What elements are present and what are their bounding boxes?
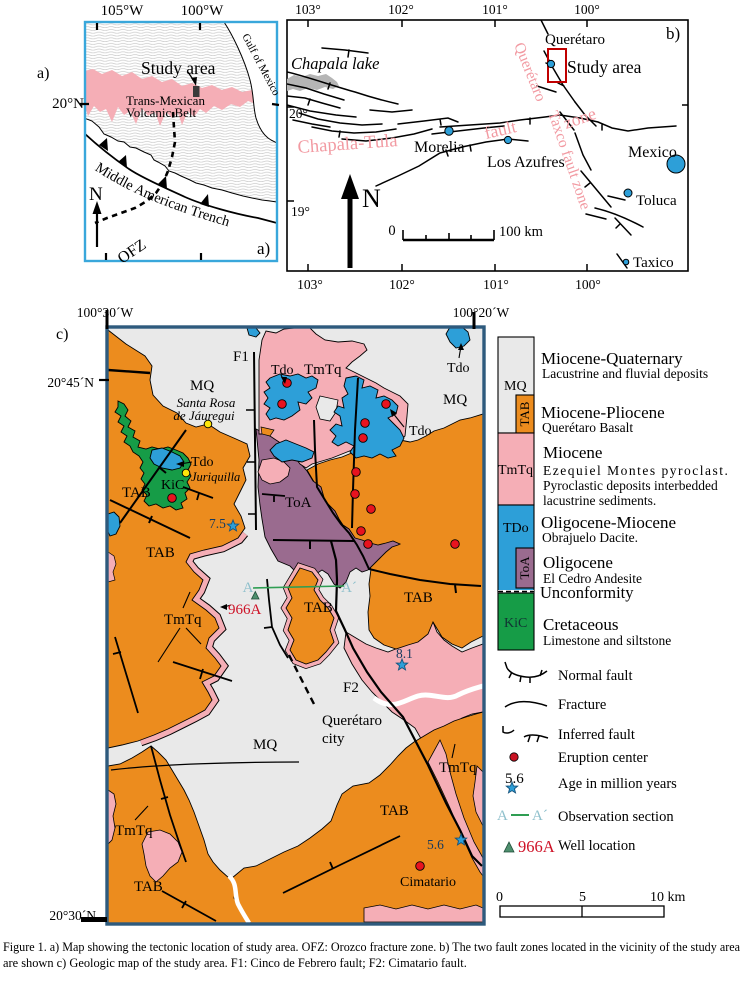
svg-text:Normal fault: Normal fault xyxy=(558,668,633,684)
svg-text:Querétaro: Querétaro xyxy=(545,32,605,48)
svg-text:100°20´W: 100°20´W xyxy=(453,305,510,320)
svg-text:5.6: 5.6 xyxy=(427,837,444,852)
svg-text:TDo: TDo xyxy=(503,521,529,536)
svg-text:Inferred fault: Inferred fault xyxy=(558,727,635,743)
svg-text:Study area: Study area xyxy=(141,58,216,78)
svg-text:KiC: KiC xyxy=(161,478,184,493)
svg-text:Querétaro Basalt: Querétaro Basalt xyxy=(542,420,633,435)
svg-text:Taxico: Taxico xyxy=(633,255,674,271)
svg-text:10 km: 10 km xyxy=(650,890,686,905)
svg-text:19°: 19° xyxy=(291,204,310,219)
svg-text:TAB: TAB xyxy=(380,803,409,819)
svg-text:Study area: Study area xyxy=(567,57,642,77)
svg-text:Tdo: Tdo xyxy=(271,363,294,378)
svg-text:de Jáuregui: de Jáuregui xyxy=(173,408,235,423)
svg-text:5: 5 xyxy=(579,890,586,905)
svg-text:Juriquilla: Juriquilla xyxy=(191,470,240,484)
svg-text:Tdo: Tdo xyxy=(409,424,432,439)
svg-text:8.1: 8.1 xyxy=(396,646,413,661)
svg-text:b): b) xyxy=(666,24,680,43)
svg-text:TAB: TAB xyxy=(122,485,151,501)
svg-text:A´: A´ xyxy=(532,808,548,824)
svg-text:Cimatario: Cimatario xyxy=(400,875,456,890)
svg-text:Limestone and siltstone: Limestone and siltstone xyxy=(543,633,671,648)
svg-text:Pyroclastic deposits interbedd: Pyroclastic deposits interbedded xyxy=(543,478,718,493)
svg-text:20°: 20° xyxy=(289,106,308,121)
svg-text:0: 0 xyxy=(388,223,395,239)
svg-text:TAB: TAB xyxy=(146,545,175,561)
svg-text:0: 0 xyxy=(496,890,503,905)
svg-text:Mexico: Mexico xyxy=(628,144,677,161)
svg-text:Toluca: Toluca xyxy=(636,193,677,209)
svg-text:Eruption center: Eruption center xyxy=(558,750,648,766)
svg-text:Cretaceous: Cretaceous xyxy=(543,615,619,634)
svg-text:Volcanic Belt: Volcanic Belt xyxy=(126,105,197,120)
svg-text:20°N: 20°N xyxy=(52,96,84,112)
svg-text:a): a) xyxy=(257,239,270,258)
svg-text:966A: 966A xyxy=(228,602,262,618)
svg-text:Oligocene: Oligocene xyxy=(543,553,613,572)
svg-text:Age in million years: Age in million years xyxy=(558,776,677,792)
svg-text:city: city xyxy=(322,731,345,747)
svg-text:20°45´N: 20°45´N xyxy=(47,375,94,390)
svg-text:Figure 1. a) Map showing the t: Figure 1. a) Map showing the tectonic lo… xyxy=(3,940,740,954)
svg-text:TAB: TAB xyxy=(404,590,433,606)
svg-text:Fracture: Fracture xyxy=(558,697,606,713)
svg-text:Observation section: Observation section xyxy=(558,809,674,825)
svg-text:Morelia: Morelia xyxy=(414,139,465,156)
svg-text:20°30´N: 20°30´N xyxy=(49,908,96,923)
svg-text:MQ: MQ xyxy=(253,737,277,753)
svg-text:TmTq: TmTq xyxy=(164,612,202,628)
svg-text:103°: 103° xyxy=(297,277,323,292)
svg-text:Well location: Well location xyxy=(558,838,636,854)
svg-text:101°: 101° xyxy=(483,277,509,292)
svg-text:are shown c) Geologic map of t: are shown c) Geologic map of the study a… xyxy=(3,956,467,970)
svg-text:7.5: 7.5 xyxy=(209,516,226,531)
svg-text:TAB: TAB xyxy=(304,600,333,616)
svg-text:Tdo: Tdo xyxy=(191,455,214,470)
svg-text:100 km: 100 km xyxy=(499,224,544,240)
svg-text:100°: 100° xyxy=(575,277,601,292)
svg-text:TmTq: TmTq xyxy=(498,463,533,478)
svg-text:c): c) xyxy=(56,326,68,343)
svg-text:lacustrine sediments.: lacustrine sediments. xyxy=(543,493,656,508)
svg-text:TmTq: TmTq xyxy=(439,760,477,776)
svg-text:100°30´W: 100°30´W xyxy=(77,305,134,320)
svg-text:Lacustrine and fluvial deposit: Lacustrine and fluvial deposits xyxy=(542,366,708,381)
svg-text:MQ: MQ xyxy=(504,379,527,394)
svg-text:Miocene: Miocene xyxy=(543,443,602,462)
svg-text:102°: 102° xyxy=(388,2,414,17)
svg-text:Chapala lake: Chapala lake xyxy=(291,54,379,73)
svg-text:ToA: ToA xyxy=(517,556,532,580)
svg-text:105°W: 105°W xyxy=(101,3,144,19)
svg-text:103°: 103° xyxy=(295,2,321,17)
svg-text:101°: 101° xyxy=(482,2,508,17)
svg-text:TmTq: TmTq xyxy=(304,362,342,378)
svg-text:5.6: 5.6 xyxy=(505,771,524,787)
svg-text:100°: 100° xyxy=(574,2,600,17)
svg-text:Obrajuelo Dacite.: Obrajuelo Dacite. xyxy=(542,530,638,545)
svg-text:TAB: TAB xyxy=(517,401,532,426)
svg-text:MQ: MQ xyxy=(443,392,467,408)
svg-text:Ezequiel Montes pyroclast.: Ezequiel Montes pyroclast. xyxy=(543,463,729,478)
svg-text:TAB: TAB xyxy=(134,879,163,895)
svg-text:A´: A´ xyxy=(341,580,357,596)
svg-text:N: N xyxy=(89,184,103,205)
svg-text:102°: 102° xyxy=(389,277,415,292)
svg-text:A: A xyxy=(243,580,254,596)
svg-text:KiC: KiC xyxy=(504,616,527,631)
svg-text:100°W: 100°W xyxy=(181,3,224,19)
svg-text:F2: F2 xyxy=(343,680,359,696)
svg-text:ToA: ToA xyxy=(285,495,312,511)
svg-text:TmTq: TmTq xyxy=(115,823,153,839)
svg-text:Tdo: Tdo xyxy=(447,361,470,376)
svg-text:MQ: MQ xyxy=(190,378,214,394)
svg-text:a): a) xyxy=(37,65,49,82)
svg-text:Unconformity: Unconformity xyxy=(540,583,634,602)
svg-text:Los Azufres: Los Azufres xyxy=(487,154,565,171)
svg-text:Querétaro: Querétaro xyxy=(322,713,382,729)
svg-text:N: N xyxy=(362,184,381,213)
svg-text:F1: F1 xyxy=(233,349,249,365)
svg-text:A: A xyxy=(497,808,508,824)
svg-text:966A: 966A xyxy=(518,837,555,856)
